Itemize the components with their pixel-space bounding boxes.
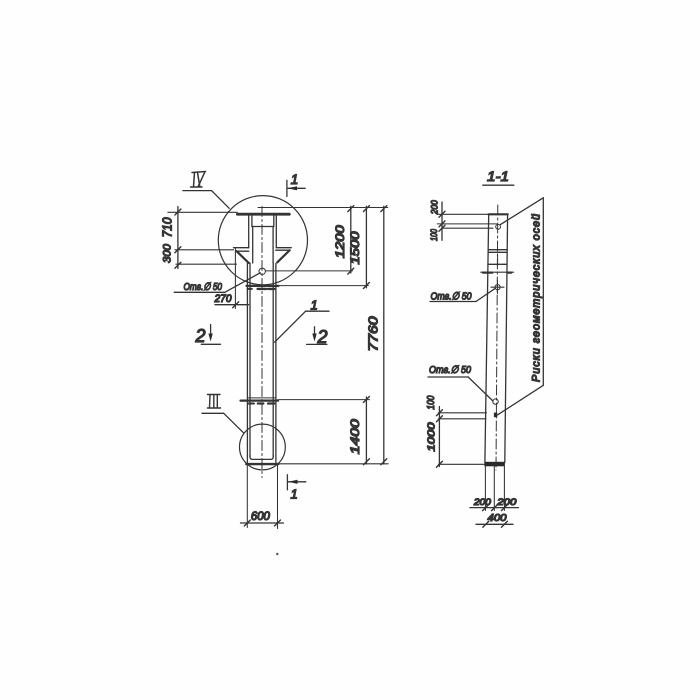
svg-text:100: 100 xyxy=(429,228,440,241)
svg-text:200: 200 xyxy=(473,497,492,508)
svg-text:1000: 1000 xyxy=(427,422,438,452)
svg-text:2: 2 xyxy=(195,326,206,346)
svg-text:1-1: 1-1 xyxy=(487,168,509,184)
svg-text:200: 200 xyxy=(496,497,517,508)
svg-text:300: 300 xyxy=(161,243,173,263)
svg-text:600: 600 xyxy=(251,511,271,523)
svg-text:710: 710 xyxy=(161,217,175,237)
svg-text:200: 200 xyxy=(430,200,441,216)
svg-text:Риски геометрических осей: Риски геометрических осей xyxy=(531,213,543,382)
svg-text:100: 100 xyxy=(426,395,437,409)
svg-text:1400: 1400 xyxy=(348,419,362,454)
svg-text:Отв.∅ 50: Отв.∅ 50 xyxy=(429,364,471,376)
svg-text:Отв.∅ 50: Отв.∅ 50 xyxy=(431,291,472,303)
svg-text:400: 400 xyxy=(488,512,507,524)
svg-text:270: 270 xyxy=(214,293,233,305)
svg-text:1: 1 xyxy=(311,298,318,313)
svg-text:1200: 1200 xyxy=(333,225,347,258)
svg-text:1: 1 xyxy=(291,172,299,187)
svg-text:1500: 1500 xyxy=(348,231,362,264)
svg-text:1: 1 xyxy=(291,487,298,502)
svg-text:7760: 7760 xyxy=(367,316,381,351)
svg-text:Отв.∅ 50: Отв.∅ 50 xyxy=(184,281,223,293)
